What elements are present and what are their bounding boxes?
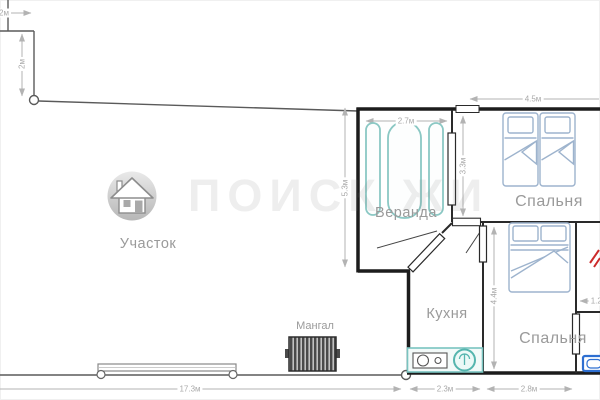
single-bed-1 (503, 113, 538, 186)
top-wall-window (456, 106, 479, 113)
pillow (541, 226, 566, 241)
kitchen-fixtures (408, 348, 483, 372)
dim-veranda-width: 2.7м (396, 117, 417, 126)
double-bed (509, 223, 570, 292)
dim-kitchen-width: 2.3м (435, 385, 456, 394)
dim-plot-top-width: 2м (0, 9, 11, 18)
plot-label: Участок (120, 236, 176, 252)
dim-veranda-right-height: 3.3м (459, 156, 468, 177)
bench-post (97, 371, 105, 379)
dim-kitchen-height: 4.4м (490, 286, 499, 307)
mangal-label: Мангал (296, 320, 334, 332)
bench (97, 364, 237, 379)
pillow (545, 117, 570, 133)
single-bed-2 (540, 113, 575, 186)
dim-bathroom-width: 1.2м (589, 297, 600, 306)
dim-house-left-height: 5.3м (341, 178, 350, 199)
veranda-door (408, 234, 445, 272)
dim-bedroom-top-width: 4.5м (523, 95, 544, 104)
bedroom2-door (480, 226, 487, 262)
house-icon (108, 172, 157, 221)
bench-post (229, 371, 237, 379)
mangal (285, 337, 340, 371)
pillow (508, 117, 533, 133)
stove (413, 353, 447, 368)
dim-plot-bottom-width: 17.3м (177, 385, 202, 394)
bedroom-top-label: Спальня (515, 193, 583, 211)
dim-bedroom-bottom-width: 2.8м (519, 385, 540, 394)
dim-plot-top-height: 2м (18, 57, 27, 71)
fence-post (30, 96, 39, 105)
veranda-label: Веранда (375, 205, 437, 221)
bedroom-bottom-label: Спальня (519, 330, 587, 348)
bathroom-sink (583, 356, 600, 371)
floor-plan: ПОИСК ЖИ Участок Веранда Спальня Кухня С… (0, 0, 600, 400)
pillow (513, 226, 538, 241)
watermark: ПОИСК ЖИ (188, 170, 489, 222)
red-mark (590, 250, 600, 267)
kitchen-label: Кухня (426, 306, 467, 322)
